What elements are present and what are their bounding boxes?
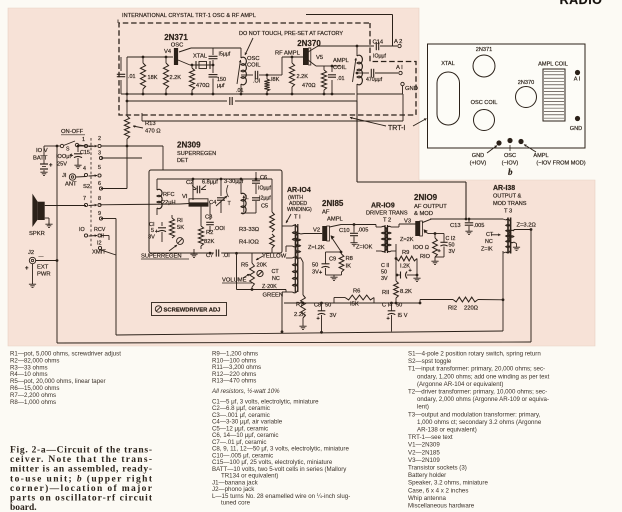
svg-text:220Ω: 220Ω <box>464 306 479 312</box>
svg-text:25V: 25V <box>57 162 67 168</box>
svg-text:IO: IO <box>79 227 85 233</box>
svg-text:VI: VI <box>182 194 188 200</box>
svg-text:NC: NC <box>272 276 280 282</box>
svg-text:XTAL: XTAL <box>193 54 208 60</box>
svg-text:3V: 3V <box>148 235 155 241</box>
svg-text:PWR: PWR <box>37 272 51 278</box>
svg-text:R3-33Ω: R3-33Ω <box>239 227 260 233</box>
svg-text:R2: R2 <box>206 230 213 236</box>
svg-text:(+IOV): (+IOV) <box>470 161 487 167</box>
svg-text:DET: DET <box>177 158 189 164</box>
svg-text:18K: 18K <box>148 75 158 81</box>
svg-text:C9: C9 <box>329 257 336 263</box>
svg-text:VOLUME: VOLUME <box>222 278 247 284</box>
svg-text:470μμf: 470μμf <box>366 77 383 83</box>
svg-text:COIL: COIL <box>247 63 261 69</box>
svg-text:+: + <box>317 316 320 322</box>
svg-text:J2: J2 <box>28 250 34 256</box>
svg-text:82K: 82K <box>204 239 214 245</box>
svg-text:A I: A I <box>574 77 581 83</box>
svg-text:.OI: .OI <box>253 79 260 85</box>
svg-text:5: 5 <box>98 165 101 171</box>
svg-text:XTAL: XTAL <box>441 61 455 67</box>
svg-text:I2: I2 <box>97 241 102 247</box>
svg-text:5: 5 <box>151 228 154 234</box>
svg-text:I5K: I5K <box>350 302 359 308</box>
svg-text:DRIVER TRANS: DRIVER TRANS <box>366 211 408 217</box>
svg-text:RF AMPL: RF AMPL <box>275 51 301 57</box>
svg-text:T 2: T 2 <box>383 218 391 224</box>
svg-text:C2: C2 <box>186 180 193 186</box>
svg-text:4: 4 <box>83 166 86 172</box>
svg-text:IO V: IO V <box>36 148 48 154</box>
svg-text:V3: V3 <box>404 219 411 225</box>
svg-text:+: + <box>319 270 322 276</box>
svg-text:AR-IO9: AR-IO9 <box>371 203 395 210</box>
svg-text:OSC: OSC <box>504 153 516 159</box>
svg-text:R5: R5 <box>241 263 248 269</box>
svg-text:.005: .005 <box>358 228 369 234</box>
svg-text:(−IOV FROM MOD): (−IOV FROM MOD) <box>536 161 585 167</box>
svg-text:C10: C10 <box>339 228 350 234</box>
svg-text:b: b <box>508 167 513 177</box>
svg-text:BATT: BATT <box>33 156 48 162</box>
svg-text:C6: C6 <box>260 175 267 181</box>
svg-text:T I: T I <box>294 215 301 221</box>
svg-text:470Ω: 470Ω <box>196 83 210 89</box>
svg-text:(−IOV): (−IOV) <box>502 161 519 167</box>
svg-text:R6: R6 <box>353 289 360 295</box>
svg-text:.01: .01 <box>337 76 345 82</box>
svg-text:1: 1 <box>82 137 85 143</box>
svg-text:S: S <box>66 147 70 153</box>
svg-text:8: 8 <box>98 196 101 202</box>
svg-text:IOO Ω: IOO Ω <box>413 245 429 251</box>
svg-text:NC: NC <box>485 239 493 245</box>
svg-text:GND: GND <box>405 86 418 92</box>
svg-text:II: II <box>101 234 104 240</box>
svg-text:3V: 3V <box>449 249 456 255</box>
svg-text:7: 7 <box>83 196 86 202</box>
svg-text:V5: V5 <box>316 55 323 61</box>
svg-text:RI: RI <box>177 218 183 224</box>
svg-text:Z=I.2K: Z=I.2K <box>308 245 325 251</box>
svg-text:I2μμf: I2μμf <box>259 196 271 202</box>
svg-text:50: 50 <box>449 243 455 249</box>
svg-text:3V: 3V <box>381 276 388 282</box>
svg-text:I5μμf: I5μμf <box>219 52 231 58</box>
svg-text:2.2K: 2.2K <box>297 74 309 80</box>
svg-text:SCREWDRIVER ADJ: SCREWDRIVER ADJ <box>164 307 221 313</box>
svg-text:470Ω: 470Ω <box>302 83 316 89</box>
svg-text:T 3: T 3 <box>504 209 512 215</box>
svg-text:+: + <box>70 153 73 159</box>
svg-text:RCV: RCV <box>94 227 106 233</box>
svg-text:2N371: 2N371 <box>164 33 188 42</box>
svg-text:Z=IOK: Z=IOK <box>356 245 373 251</box>
svg-text:2N370: 2N370 <box>518 80 534 86</box>
svg-text:AR-I38: AR-I38 <box>493 185 515 192</box>
svg-text:+: + <box>155 229 158 235</box>
svg-text:RII: RII <box>382 290 390 296</box>
svg-text:C13: C13 <box>450 223 461 229</box>
svg-text:2NI85: 2NI85 <box>322 199 344 208</box>
svg-text:AMPL: AMPL <box>333 58 350 64</box>
svg-text:Z=3.2Ω: Z=3.2Ω <box>517 223 537 229</box>
svg-text:C5: C5 <box>261 204 268 210</box>
svg-text:3V: 3V <box>330 313 337 319</box>
svg-text:AMPL COIL: AMPL COIL <box>538 62 568 68</box>
svg-text:TRT-I: TRT-I <box>388 125 405 132</box>
svg-text:.01: .01 <box>128 74 136 80</box>
svg-text:3: 3 <box>98 151 101 157</box>
svg-text:9: 9 <box>98 211 101 217</box>
svg-text:470 Ω: 470 Ω <box>145 129 161 135</box>
svg-text:YELLOW: YELLOW <box>262 254 287 260</box>
svg-text:Z=IK: Z=IK <box>481 247 493 253</box>
svg-text:OSC COIL: OSC COIL <box>471 100 498 106</box>
svg-text:IK: IK <box>346 264 352 270</box>
svg-text:A 2: A 2 <box>394 39 402 45</box>
svg-text:5K: 5K <box>177 225 184 231</box>
svg-text:+: + <box>25 266 29 272</box>
svg-text:20K: 20K <box>257 263 267 269</box>
svg-text:JI: JI <box>62 173 67 179</box>
svg-text:AF: AF <box>322 210 330 216</box>
svg-text:.OI: .OI <box>223 253 230 259</box>
svg-text:CT: CT <box>272 269 280 275</box>
svg-text:Fig. 2-a—Circuit of the trans-: Fig. 2-a—Circuit of the trans-ceiver. No… <box>10 446 153 512</box>
svg-text:I8K: I8K <box>271 77 280 83</box>
svg-text:I5 V: I5 V <box>398 313 408 319</box>
svg-text:—: — <box>39 254 44 260</box>
svg-text:OUTPUT &: OUTPUT & <box>493 194 521 200</box>
svg-text:AR-IO4: AR-IO4 <box>287 187 311 194</box>
svg-text:R13: R13 <box>145 121 156 127</box>
svg-text:R4-IOΩ: R4-IOΩ <box>239 240 259 246</box>
svg-text:Z=2K: Z=2K <box>400 237 414 243</box>
svg-text:RFC: RFC <box>163 192 175 198</box>
svg-text:EXT: EXT <box>37 265 49 271</box>
svg-text:OSC: OSC <box>171 43 184 49</box>
svg-text:MOD TRANS: MOD TRANS <box>493 201 527 207</box>
svg-text:.005: .005 <box>474 223 485 229</box>
svg-text:IOμμf: IOμμf <box>258 186 271 192</box>
svg-text:6.8μμf: 6.8μμf <box>202 180 218 186</box>
svg-text:AF OUTPUT: AF OUTPUT <box>414 204 447 210</box>
svg-text:RADIO: RADIO <box>560 0 603 7</box>
svg-text:OSC: OSC <box>247 56 260 62</box>
svg-text:XMIT: XMIT <box>92 250 106 256</box>
svg-text:WINDING): WINDING) <box>287 207 312 213</box>
svg-text:50: 50 <box>381 270 387 276</box>
svg-text:.01: .01 <box>236 88 244 94</box>
svg-text:COIL: COIL <box>333 65 347 71</box>
svg-text:ANT: ANT <box>65 182 77 188</box>
svg-text:2.2K: 2.2K <box>294 312 306 318</box>
svg-text:Z·20K: Z·20K <box>262 284 277 290</box>
svg-text:GND: GND <box>570 126 582 132</box>
svg-text:V4: V4 <box>164 49 172 55</box>
svg-text:SUPERREGEN: SUPERREGEN <box>177 151 216 157</box>
svg-text:+: + <box>409 268 412 274</box>
svg-text:.OOI: .OOI <box>214 226 225 232</box>
svg-text:2.2K: 2.2K <box>170 75 182 81</box>
svg-text:8.2K: 8.2K <box>400 289 412 295</box>
svg-text:RIO: RIO <box>420 254 431 260</box>
svg-text:IOμμf: IOμμf <box>373 54 386 60</box>
svg-text:DO NOT TOUCH, PRE-SET AT FACTO: DO NOT TOUCH, PRE-SET AT FACTORY <box>239 31 343 37</box>
svg-text:C I2: C I2 <box>446 236 456 242</box>
svg-text:AMPL: AMPL <box>533 153 548 159</box>
svg-text:A I: A I <box>396 65 403 71</box>
svg-text:C II: C II <box>381 263 389 269</box>
svg-text:+: + <box>438 249 441 255</box>
svg-text:GREEN: GREEN <box>263 293 284 299</box>
svg-text:22μH: 22μH <box>162 200 176 206</box>
svg-text:50: 50 <box>312 263 318 269</box>
svg-text:R8: R8 <box>346 256 353 262</box>
svg-text:ON-OFF: ON-OFF <box>61 129 84 135</box>
svg-text:RI2: RI2 <box>448 306 457 312</box>
svg-text:2: 2 <box>98 136 101 142</box>
svg-text:GND: GND <box>472 153 484 159</box>
svg-text:2N371: 2N371 <box>476 47 492 53</box>
svg-text:S2: S2 <box>83 184 90 190</box>
svg-text:6: 6 <box>98 181 101 187</box>
svg-text:+: + <box>387 316 390 322</box>
svg-text:V2: V2 <box>313 228 320 234</box>
svg-text:SUPERREGEN: SUPERREGEN <box>141 254 182 260</box>
svg-text:μμf: μμf <box>217 83 225 89</box>
svg-text:C3: C3 <box>205 215 212 221</box>
svg-text:C15: C15 <box>80 150 90 156</box>
svg-text:2N309: 2N309 <box>177 141 201 150</box>
svg-text:AMPL: AMPL <box>327 217 344 223</box>
svg-text:INTERNATIONAL CRYSTAL TRT-1 OS: INTERNATIONAL CRYSTAL TRT-1 OSC & RF AMP… <box>122 13 256 19</box>
svg-text:2NIO9: 2NIO9 <box>414 193 438 202</box>
svg-text:+: + <box>49 163 53 169</box>
svg-text:R9: R9 <box>402 250 409 256</box>
svg-text:SPKR: SPKR <box>29 231 45 237</box>
svg-text:& MOD: & MOD <box>414 211 433 217</box>
